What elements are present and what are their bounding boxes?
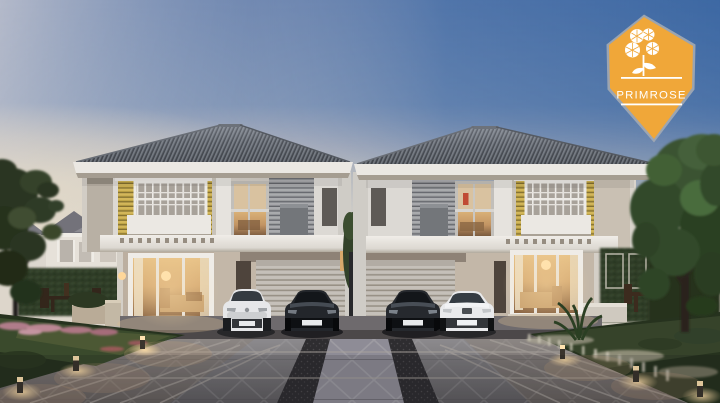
svg-text:PRIMROSE: PRIMROSE [616, 90, 686, 102]
